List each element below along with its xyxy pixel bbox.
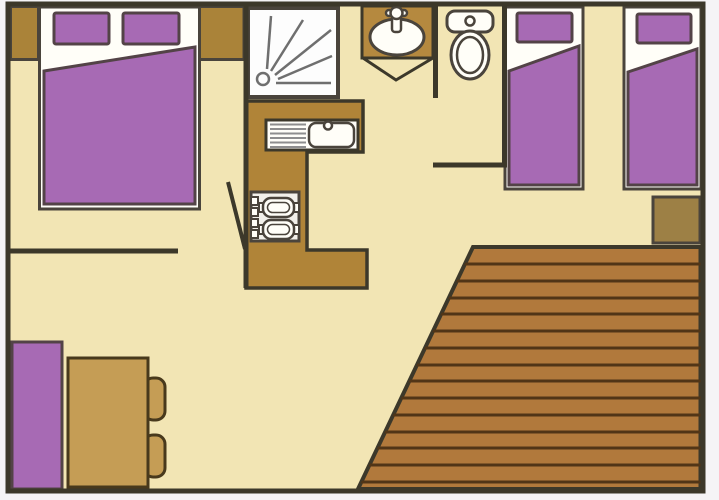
single-bed-2-pillow [637, 14, 691, 43]
toilet-flush-button [466, 17, 475, 26]
single-bed-2-blanket [628, 49, 697, 185]
burner-1 [259, 198, 299, 217]
pillow-right [123, 13, 179, 44]
single-bed-1-blanket [509, 46, 579, 185]
toilet [447, 11, 493, 79]
dining-table [68, 358, 148, 487]
floor-plan-drawing [0, 0, 719, 500]
burner-2 [259, 220, 299, 239]
kitchen-tap-icon [324, 122, 332, 130]
single-bed-1 [505, 7, 583, 189]
bedside-cabinet-left [11, 7, 39, 60]
pillow-left [54, 13, 109, 44]
shower-drain-icon [257, 73, 269, 85]
kitchen-sink-unit [266, 120, 358, 150]
double-bed [40, 7, 200, 209]
wc [447, 11, 493, 79]
single-bed-2 [624, 7, 701, 189]
bench-seat [12, 342, 62, 489]
stove-hob [251, 192, 299, 241]
shower-tray [248, 8, 338, 97]
washbasin-vanity [362, 6, 433, 58]
side-table [653, 197, 700, 243]
bedside-cabinet-right [197, 7, 244, 60]
single-bed-1-pillow [517, 13, 572, 42]
living-dining-area [12, 342, 165, 489]
floor-plan [0, 0, 719, 500]
double-bed-blanket [44, 47, 195, 204]
